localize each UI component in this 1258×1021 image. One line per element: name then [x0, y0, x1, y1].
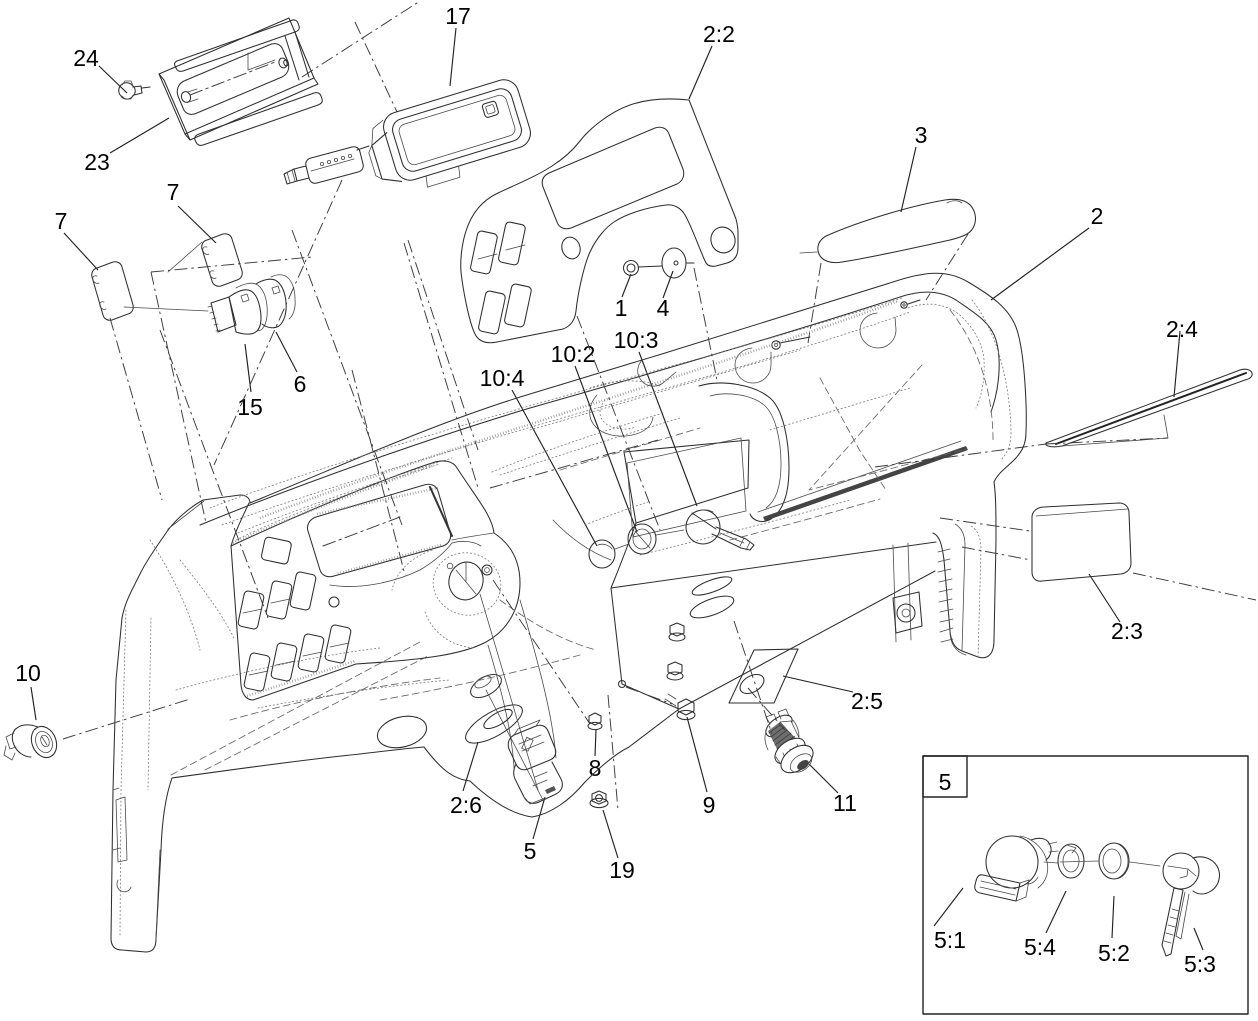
svg-text:24: 24 — [73, 45, 99, 71]
svg-text:15: 15 — [237, 394, 263, 420]
svg-text:23: 23 — [84, 149, 110, 175]
svg-text:6: 6 — [294, 371, 307, 397]
svg-text:2: 2 — [1091, 203, 1104, 229]
svg-text:7: 7 — [167, 179, 180, 205]
svg-text:17: 17 — [445, 3, 471, 29]
svg-text:5:3: 5:3 — [1184, 951, 1216, 977]
svg-text:2:3: 2:3 — [1111, 618, 1143, 644]
svg-text:3: 3 — [915, 122, 928, 148]
svg-text:19: 19 — [609, 857, 635, 883]
svg-text:10: 10 — [15, 660, 41, 686]
svg-text:4: 4 — [657, 295, 670, 321]
svg-text:11: 11 — [833, 790, 857, 816]
svg-text:5:4: 5:4 — [1024, 934, 1056, 960]
svg-text:2:2: 2:2 — [703, 21, 735, 47]
svg-text:2:6: 2:6 — [450, 792, 482, 818]
svg-text:2:4: 2:4 — [1166, 316, 1198, 342]
svg-text:9: 9 — [703, 792, 716, 818]
svg-text:7: 7 — [55, 208, 68, 234]
svg-text:5:2: 5:2 — [1098, 940, 1130, 966]
svg-text:10:4: 10:4 — [480, 365, 525, 391]
svg-text:2:5: 2:5 — [851, 688, 883, 714]
svg-text:1: 1 — [615, 295, 628, 321]
svg-text:5:1: 5:1 — [934, 927, 966, 953]
svg-text:10:3: 10:3 — [614, 327, 659, 353]
svg-text:5: 5 — [939, 769, 952, 795]
svg-text:5: 5 — [524, 838, 537, 864]
